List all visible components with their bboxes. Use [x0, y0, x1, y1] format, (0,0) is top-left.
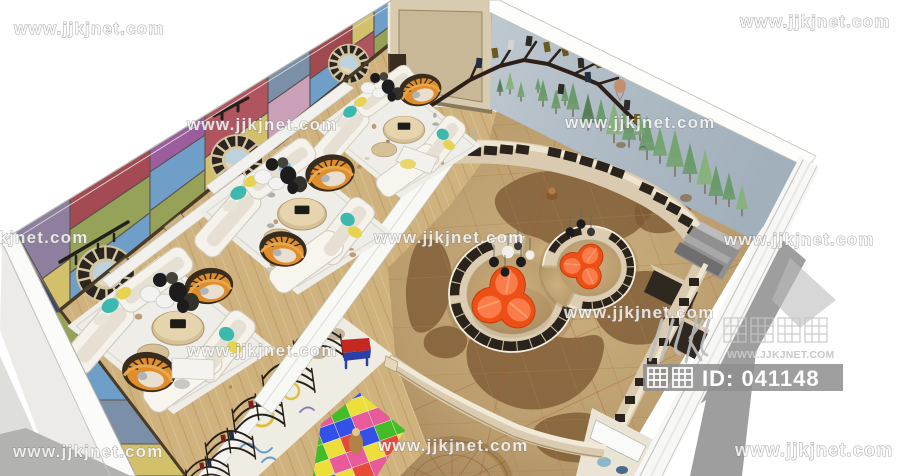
svg-text:www.jjkjnet.com: www.jjkjnet.com: [723, 230, 875, 249]
svg-text:www.jjkjnet.com: www.jjkjnet.com: [373, 228, 525, 247]
svg-text:www.jjkjnet.com: www.jjkjnet.com: [186, 341, 338, 360]
svg-text:www.jjkjnet.com: www.jjkjnet.com: [563, 303, 715, 322]
svg-text:www.jjkjnet.com: www.jjkjnet.com: [564, 113, 716, 132]
svg-text:www.jjkjnet.com: www.jjkjnet.com: [13, 19, 165, 38]
svg-text:www.jjkjnet.com: www.jjkjnet.com: [12, 442, 164, 461]
svg-text:www.jjkjnet.com: www.jjkjnet.com: [739, 12, 891, 31]
svg-text:www.jjkjnet.com: www.jjkjnet.com: [377, 436, 529, 455]
svg-text:ID: 041148: ID: 041148: [702, 366, 820, 391]
svg-text:www.jjkjnet.com: www.jjkjnet.com: [734, 440, 893, 460]
svg-text:www.jjkjnet.com: www.jjkjnet.com: [0, 228, 89, 247]
svg-text:www.jjkjnet.com: www.jjkjnet.com: [186, 115, 338, 134]
svg-text:WWW.JJKJNET.COM: WWW.JJKJNET.COM: [727, 349, 834, 361]
